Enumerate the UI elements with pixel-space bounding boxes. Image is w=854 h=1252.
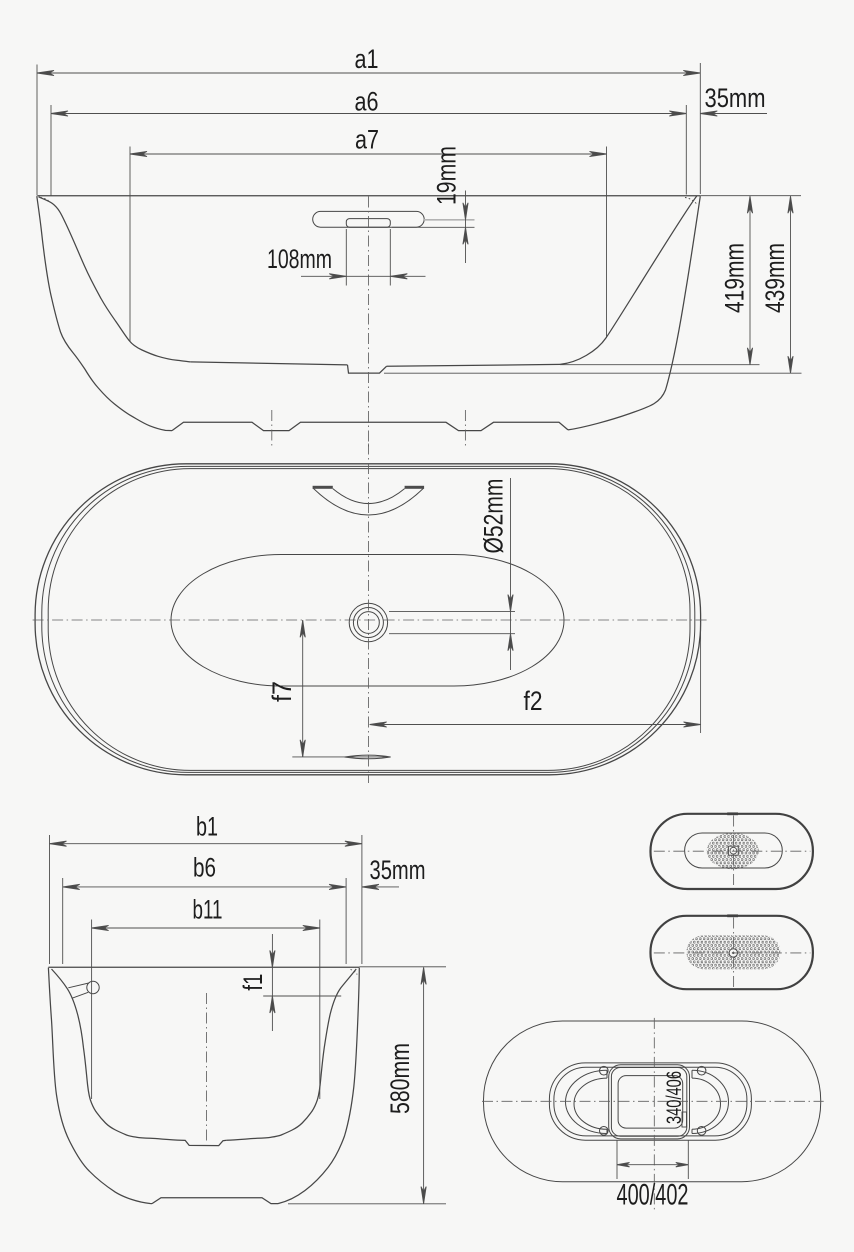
svg-text:a7: a7: [355, 125, 379, 155]
svg-text:35mm: 35mm: [370, 855, 426, 885]
svg-text:19mm: 19mm: [432, 146, 462, 205]
svg-text:439mm: 439mm: [760, 243, 790, 313]
svg-text:f2: f2: [524, 686, 543, 716]
svg-text:35mm: 35mm: [705, 83, 766, 113]
svg-text:a1: a1: [355, 44, 379, 74]
svg-text:419mm: 419mm: [720, 243, 750, 313]
svg-text:108mm: 108mm: [267, 244, 332, 274]
svg-text:580mm: 580mm: [385, 1043, 415, 1114]
svg-text:a6: a6: [355, 87, 379, 117]
svg-text:340/406: 340/406: [663, 1071, 686, 1124]
svg-text:400/402: 400/402: [617, 1179, 689, 1212]
svg-text:b1: b1: [196, 812, 218, 842]
svg-text:b6: b6: [193, 853, 216, 883]
svg-text:Ø52mm: Ø52mm: [478, 479, 508, 554]
svg-text:b11: b11: [193, 895, 223, 925]
svg-text:f1: f1: [238, 974, 268, 991]
svg-text:f7: f7: [267, 681, 297, 702]
